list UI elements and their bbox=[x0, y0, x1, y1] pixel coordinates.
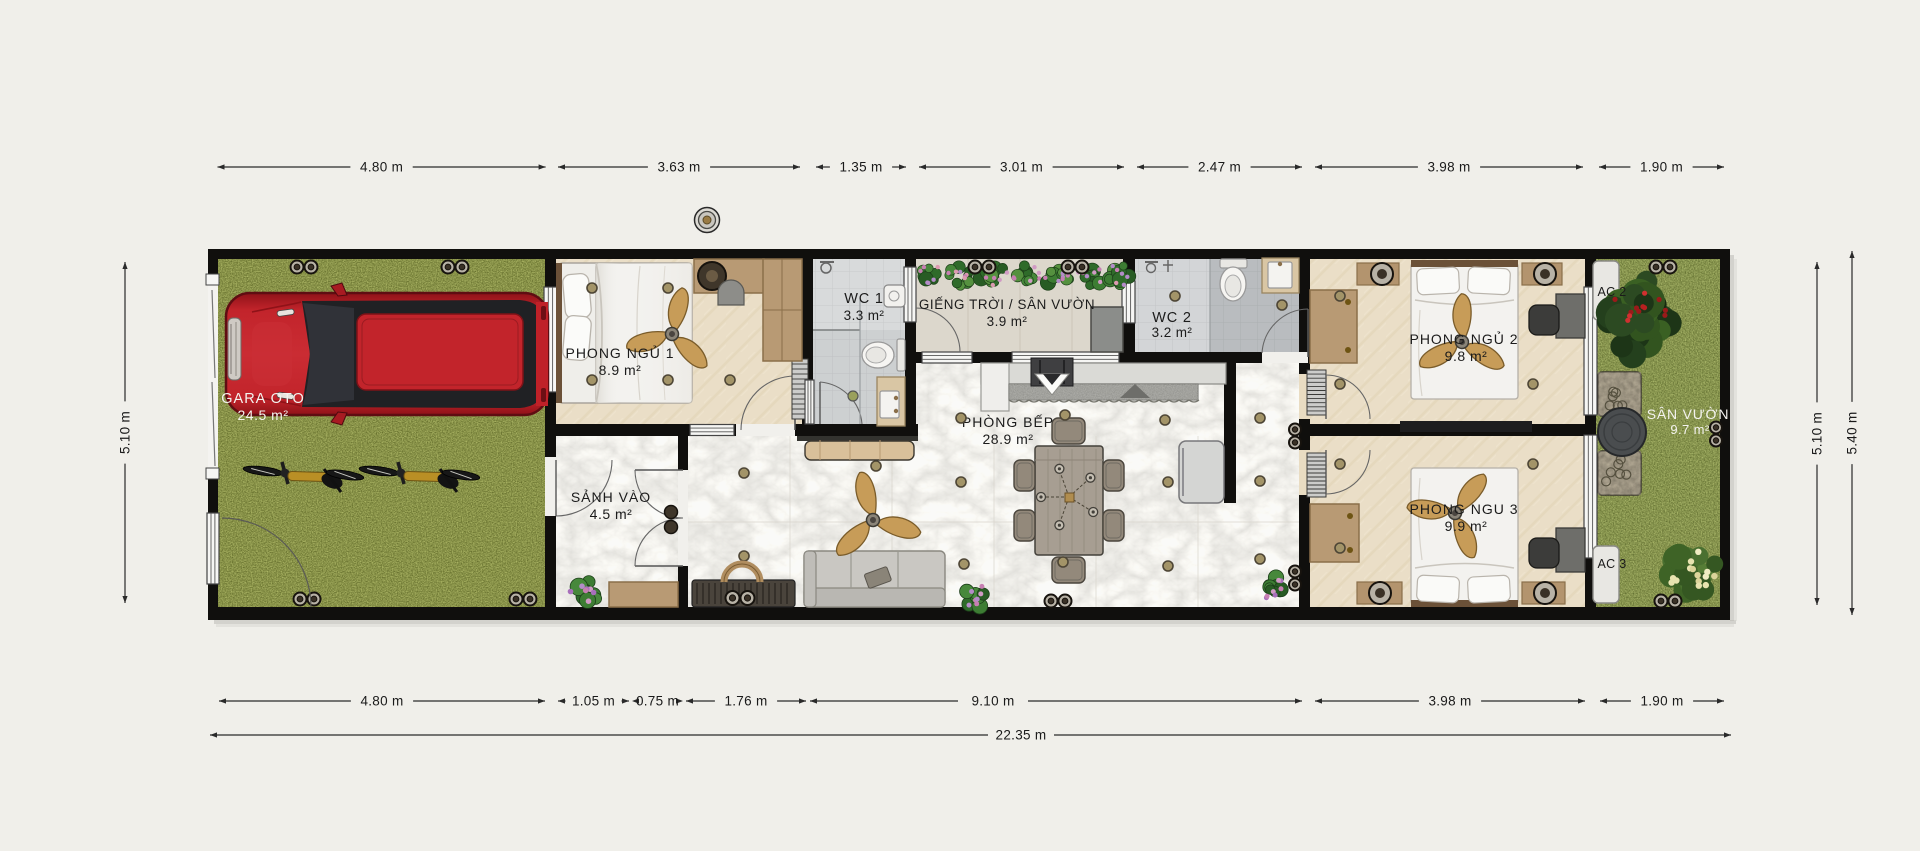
svg-text:24.5 m²: 24.5 m² bbox=[238, 407, 289, 423]
svg-text:4.5 m²: 4.5 m² bbox=[590, 506, 633, 522]
svg-text:SẢNH VÀO: SẢNH VÀO bbox=[571, 489, 651, 505]
svg-text:1.05 m: 1.05 m bbox=[572, 694, 615, 709]
svg-text:2.47 m: 2.47 m bbox=[1198, 160, 1241, 175]
svg-text:1.76 m: 1.76 m bbox=[724, 694, 767, 709]
svg-text:4.80 m: 4.80 m bbox=[360, 694, 403, 709]
svg-text:9.10 m: 9.10 m bbox=[971, 694, 1014, 709]
svg-text:5.10 m: 5.10 m bbox=[118, 411, 133, 454]
svg-text:9.7 m²: 9.7 m² bbox=[1670, 422, 1710, 437]
svg-text:5.40 m: 5.40 m bbox=[1845, 411, 1860, 454]
svg-text:3.63 m: 3.63 m bbox=[657, 160, 700, 175]
svg-text:3.98 m: 3.98 m bbox=[1427, 160, 1470, 175]
svg-text:3.3 m²: 3.3 m² bbox=[844, 308, 885, 323]
svg-text:PHONG NGỦ 1: PHONG NGỦ 1 bbox=[565, 344, 674, 361]
svg-text:8.9 m²: 8.9 m² bbox=[599, 362, 642, 378]
svg-text:28.9 m²: 28.9 m² bbox=[983, 431, 1034, 447]
svg-text:SÂN VƯỜN: SÂN VƯỜN bbox=[1647, 406, 1729, 422]
svg-text:0.75 m: 0.75 m bbox=[636, 694, 679, 709]
svg-text:3.9 m²: 3.9 m² bbox=[987, 314, 1028, 329]
svg-text:1.90 m: 1.90 m bbox=[1640, 160, 1683, 175]
svg-text:WC 1: WC 1 bbox=[844, 291, 883, 307]
svg-text:3.98 m: 3.98 m bbox=[1428, 694, 1471, 709]
svg-text:GIẾNG TRỜI / SÂN VƯỜN: GIẾNG TRỜI / SÂN VƯỜN bbox=[919, 297, 1095, 312]
svg-text:GARA OTO: GARA OTO bbox=[221, 391, 304, 407]
svg-text:3.2 m²: 3.2 m² bbox=[1152, 325, 1193, 340]
svg-text:22.35 m: 22.35 m bbox=[996, 728, 1047, 743]
svg-text:9.8 m²: 9.8 m² bbox=[1445, 348, 1488, 364]
svg-text:9.9 m²: 9.9 m² bbox=[1445, 518, 1488, 534]
svg-text:4.80 m: 4.80 m bbox=[360, 160, 403, 175]
svg-text:AC 3: AC 3 bbox=[1598, 557, 1627, 571]
svg-text:1.35 m: 1.35 m bbox=[839, 160, 882, 175]
svg-text:PHONG NGU 3: PHONG NGU 3 bbox=[1409, 501, 1518, 517]
svg-text:5.10 m: 5.10 m bbox=[1810, 412, 1825, 455]
svg-text:PHONG NGỦ 2: PHONG NGỦ 2 bbox=[1409, 330, 1518, 347]
svg-text:PHÒNG BẾP: PHÒNG BẾP bbox=[962, 414, 1054, 430]
svg-text:1.90 m: 1.90 m bbox=[1640, 694, 1683, 709]
svg-text:AC 2: AC 2 bbox=[1598, 285, 1627, 299]
svg-text:3.01 m: 3.01 m bbox=[1000, 160, 1043, 175]
svg-text:WC 2: WC 2 bbox=[1152, 310, 1191, 326]
